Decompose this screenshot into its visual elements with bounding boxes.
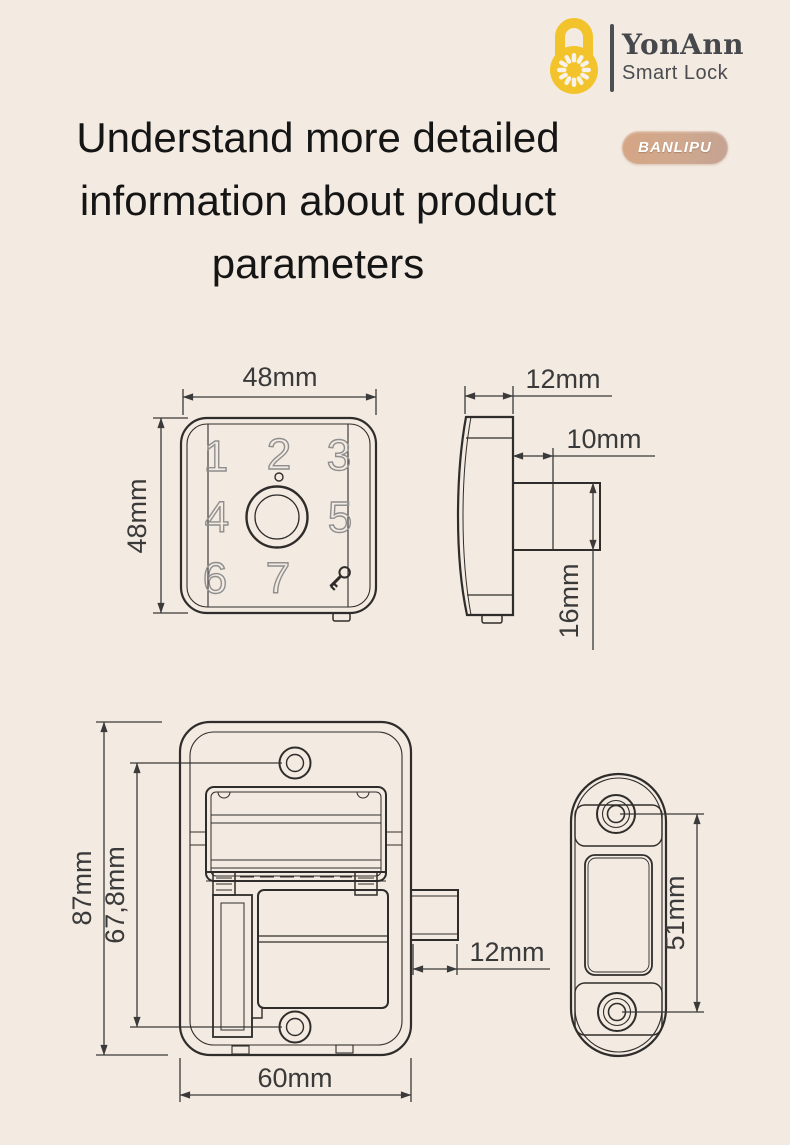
fingerprint-ring-inner [255, 495, 299, 539]
bottom-tab [482, 615, 502, 623]
upper-module-inner [211, 792, 381, 876]
strike-top-pad [575, 805, 662, 846]
clip-right [355, 872, 377, 895]
dimension-label-keypad-height: 48mm [122, 478, 152, 553]
strike-bottom-pad [575, 983, 662, 1035]
dimension-label-body-height: 87mm [67, 850, 97, 925]
keypad-digit-6: 6 [203, 554, 227, 603]
bottom-tab-left [232, 1046, 249, 1054]
dimension-label-latch-depth: 10mm [566, 424, 641, 454]
keypad-side-view: 12mm 10mm 16mm [458, 364, 655, 650]
strike-window-inner [588, 858, 649, 972]
dimension-label-screw-spacing: 67,8mm [100, 846, 130, 944]
side-profile-inner-curve [463, 417, 471, 615]
side-notch-lines [190, 832, 402, 845]
latch-block [513, 483, 600, 550]
product-parameters-page: YonAnn Smart Lock Understand more detail… [0, 0, 790, 1145]
dimension-label-bolt-throw: 12mm [469, 937, 544, 967]
strike-window [585, 855, 652, 975]
keypad-digit-4: 4 [205, 493, 229, 542]
latch-bolt-chamfers [411, 896, 458, 934]
dimension-label-strike-spacing: 51mm [660, 875, 690, 950]
screw-hole-bottom-inner [287, 1019, 304, 1036]
technical-drawings: 48mm 48mm 1 2 3 4 5 6 7 [0, 0, 790, 1145]
dimension-label-panel-depth: 12mm [525, 364, 600, 394]
lower-module [258, 890, 388, 1008]
screw-hole-top [280, 748, 311, 779]
upper-module-outer [206, 787, 386, 881]
lock-body-front-view: 87mm 67,8mm [67, 722, 550, 1102]
keypad-front-view: 48mm 48mm 1 2 3 4 5 6 7 [122, 362, 376, 621]
strike-plate-view: 51mm [571, 774, 704, 1056]
keypad-digit-5: 5 [328, 493, 352, 542]
screw-hole-top-inner [287, 755, 304, 772]
dimension-label-latch-height: 16mm [554, 563, 584, 638]
dimension-label-body-width: 60mm [257, 1063, 332, 1093]
lower-module-divider [258, 936, 388, 942]
keypad-digit-1: 1 [204, 432, 228, 481]
bottom-tab-right [336, 1045, 353, 1053]
channel-arm-outer [213, 895, 252, 1037]
channel-arm-inner [221, 903, 244, 1030]
bottom-tab [333, 613, 350, 621]
module-ridge-lines [211, 815, 381, 868]
clip-left [213, 872, 235, 895]
screw-hole-bottom [280, 1012, 311, 1043]
bottom-step [252, 1008, 262, 1037]
keypad-digit-2: 2 [267, 430, 291, 479]
module-screw-ears [218, 792, 369, 798]
keypad-digit-3: 3 [327, 431, 351, 480]
keypad-digit-7: 7 [266, 554, 290, 603]
dimension-label-keypad-width: 48mm [242, 362, 317, 392]
latch-bolt [411, 890, 458, 940]
